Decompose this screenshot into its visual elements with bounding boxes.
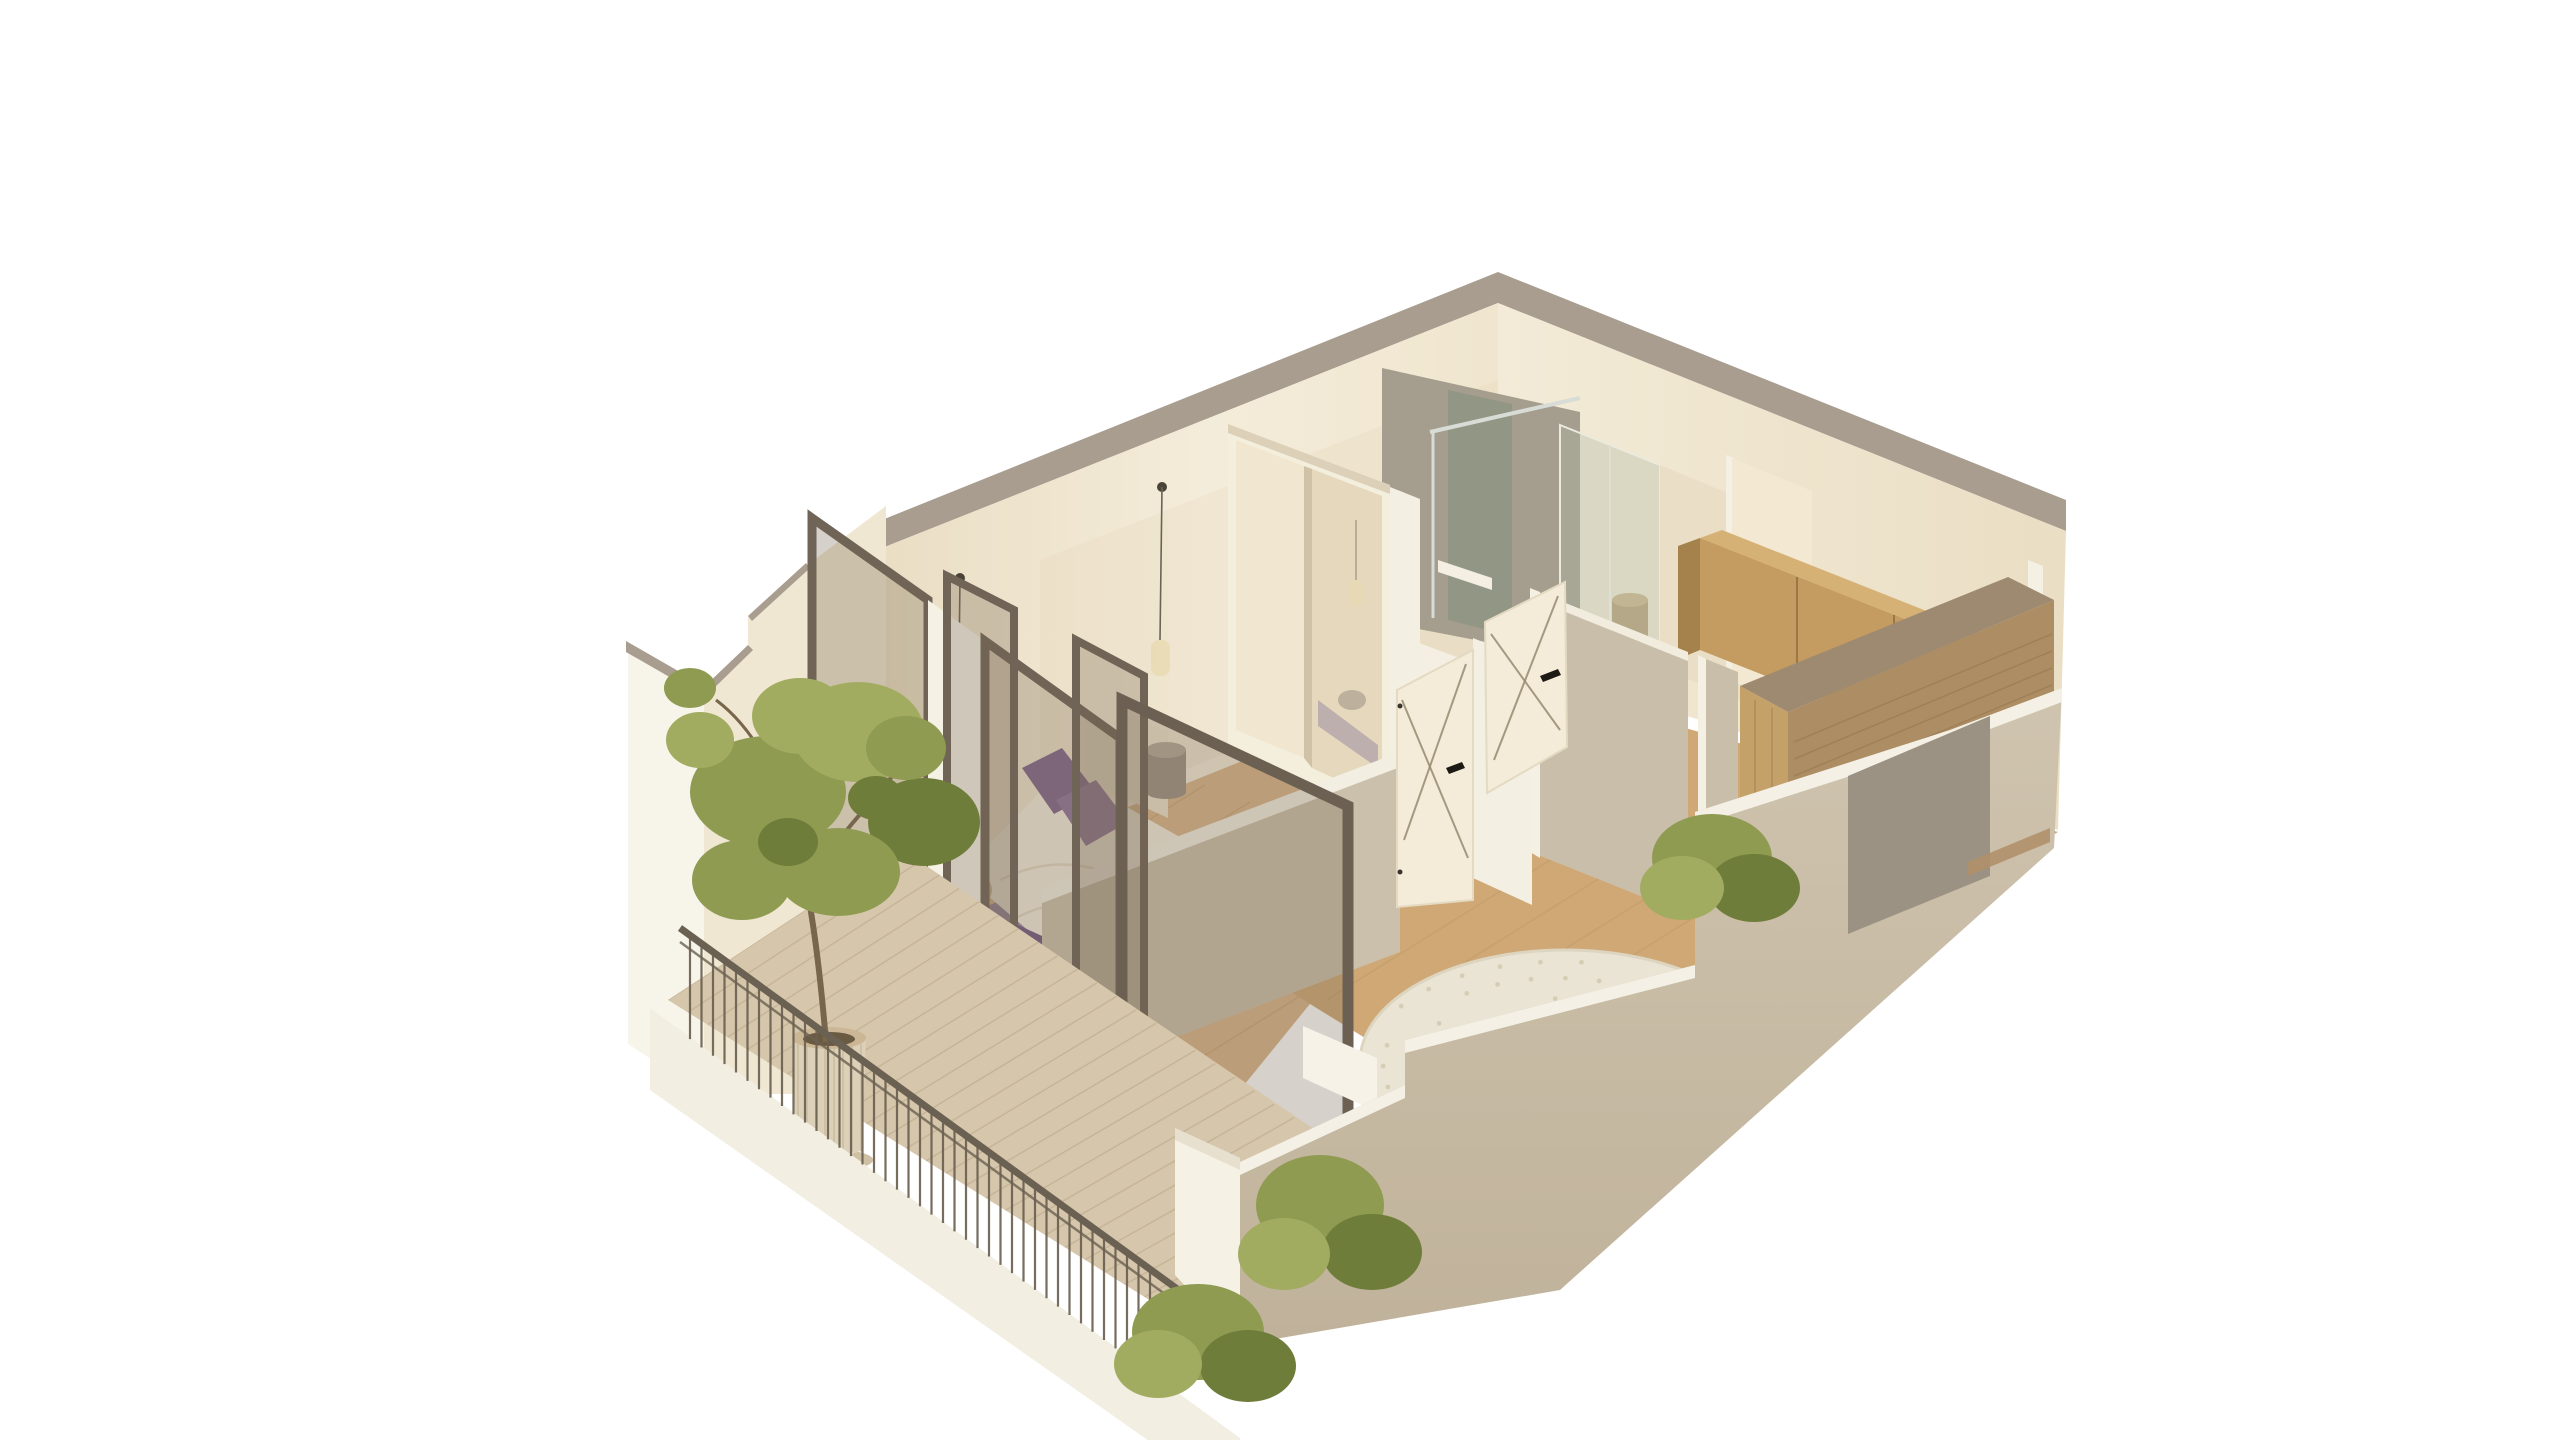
shrub	[1200, 1330, 1296, 1402]
rug-speckle	[1460, 973, 1465, 978]
rug-speckle	[1563, 976, 1568, 981]
rug-speckle	[1538, 960, 1543, 965]
rug-speckle	[1529, 977, 1534, 982]
wardrobe-sliding-door	[1236, 440, 1304, 758]
upper-cabinets-end	[1678, 538, 1700, 659]
rug-speckle	[1385, 1043, 1390, 1048]
foliage-cluster	[664, 668, 716, 708]
foliage-cluster	[758, 818, 818, 866]
foliage-cluster	[752, 678, 848, 754]
foliage-cluster	[666, 712, 734, 768]
door-hinge	[1398, 870, 1403, 875]
floorplan-render-stage	[0, 0, 2560, 1440]
pendant-glass-shade	[1151, 640, 1170, 676]
shrub	[1114, 1330, 1202, 1398]
rug-speckle	[1399, 1004, 1404, 1009]
rug-speckle	[1553, 996, 1558, 1001]
open-door-1	[1397, 650, 1473, 907]
foliage-cluster	[866, 716, 946, 780]
rug-speckle	[1597, 979, 1602, 984]
mirror-reflection-pendant	[1349, 580, 1363, 606]
foliage-cluster	[848, 776, 904, 820]
kitchen-shrub	[1640, 856, 1724, 920]
planter-shrub	[1322, 1214, 1422, 1290]
rug-speckle	[1464, 991, 1469, 996]
planter-shrub	[1238, 1218, 1330, 1290]
rug-speckle	[1385, 1085, 1390, 1090]
rug-speckle	[1498, 964, 1503, 969]
rug-speckle	[1579, 960, 1584, 965]
door-hinge	[1398, 704, 1403, 709]
rug-speckle	[1381, 1064, 1386, 1069]
wardrobe-door-divider	[1304, 466, 1312, 768]
rug-speckle	[1495, 982, 1500, 987]
rug-speckle	[1437, 1021, 1442, 1026]
rug-speckle	[1426, 987, 1431, 992]
mirror-reflection-pouf	[1338, 690, 1366, 710]
apartment-isometric-render	[0, 0, 2560, 1440]
